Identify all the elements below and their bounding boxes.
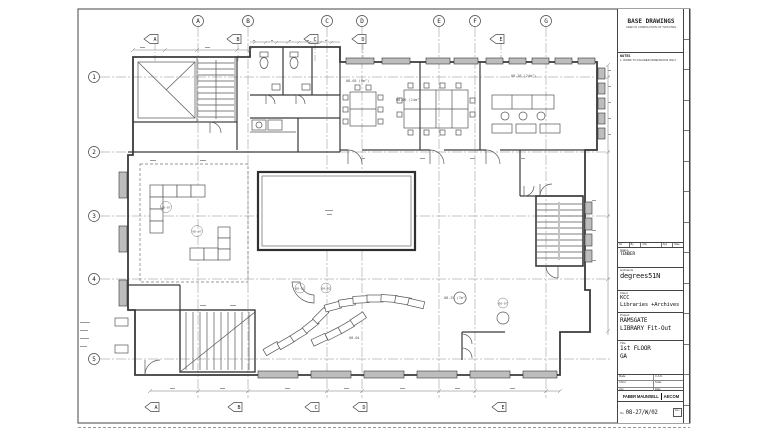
section-label: B (236, 37, 239, 43)
section-label: B (237, 405, 240, 411)
project-line: RAMSGATE (620, 317, 682, 325)
scale-label: Scale (654, 381, 684, 386)
number-label: No. (620, 411, 625, 415)
drawing-sheet: A B C D E F G 1 2 3 4 5 A B C D (0, 0, 776, 437)
architects-box: Architects degrees51N (618, 268, 684, 291)
room-code: 08-04 (349, 336, 360, 340)
grid-label: E (437, 18, 441, 25)
section-label: E (499, 37, 502, 43)
strip-cell (684, 253, 689, 284)
strip-cell (684, 375, 689, 406)
section-label: C (314, 405, 317, 411)
drawing-number: 08-27/W/02 (626, 410, 658, 416)
strip-cell (684, 284, 689, 315)
room-code: 08-07 (161, 206, 170, 210)
title-line: GA (620, 353, 682, 361)
room-code: 08-01 (295, 287, 304, 291)
status-value: TENDER (620, 252, 682, 258)
room-code: 08-26 (24m²) (511, 74, 536, 78)
section-label: E (501, 405, 504, 411)
strip-cell (684, 9, 689, 40)
architects-name: degrees51N (620, 272, 682, 281)
notes-box: NOTES 1. WORK TO FIGURED DIMENSIONS ONLY (618, 53, 684, 242)
strip-cell (684, 314, 689, 345)
grid-label: B (246, 18, 250, 25)
chkd-label: Chk'd (618, 381, 654, 386)
rev-col: By (630, 243, 642, 247)
grid-label: 3 (92, 213, 96, 220)
room-code: 08-05 (9m²) (346, 79, 369, 83)
grid-label: 4 (92, 276, 96, 283)
made-label: Made (618, 375, 654, 380)
grid-label: D (360, 18, 364, 25)
central-void (258, 172, 415, 250)
section-label: D (362, 405, 365, 411)
room-code: 08-02 (321, 287, 330, 291)
client-line: Libraries +Archives (620, 302, 682, 309)
title-line: 1st FLOOR (620, 345, 682, 353)
note-item: 1. WORK TO FIGURED DIMENSIONS ONLY (620, 58, 682, 62)
section-label: A (153, 37, 156, 43)
number-box: No. 08-27/W/02 Rev (618, 402, 684, 423)
grid-label: C (325, 18, 329, 25)
strip-cell (684, 40, 689, 71)
grid-label: F (473, 18, 477, 25)
base-drawings-subtitle: USED IN COMPILATION OF THIS DWG (620, 25, 682, 29)
strip-cell (684, 223, 689, 254)
strip-cell (684, 131, 689, 162)
aecom-logo: AECOM (664, 394, 680, 399)
grid-label: A (196, 18, 200, 25)
section-label: A (154, 405, 157, 411)
grid-label: 2 (92, 149, 96, 156)
strip-cell (684, 345, 689, 376)
logo-box: FABER MAUNSELL AECOM (618, 391, 684, 402)
strip-cell (684, 192, 689, 223)
base-drawings-box: BASE DRAWINGS USED IN COMPILATION OF THI… (618, 9, 684, 53)
room-code: 08-06 (14m²) (396, 98, 421, 102)
section-label: D (361, 37, 364, 43)
client-line: KCC (620, 295, 682, 302)
strip-cell (684, 406, 689, 436)
grid-label: 1 (92, 74, 96, 81)
rev-col: No (618, 243, 630, 247)
faber-maunsell-logo: FABER MAUNSELL (623, 394, 659, 399)
room-code: 08-25 (7m²) (444, 296, 467, 300)
copyright-microtext-line (78, 427, 690, 428)
client-box: Client KCC Libraries +Archives (618, 291, 684, 313)
fields-box: Made C.A.D. Chk'd Scale App Date (618, 375, 684, 391)
project-line: LIBRARY Fit-Out (620, 325, 682, 333)
rev-col: Chk (641, 243, 661, 247)
strip-cell (684, 70, 689, 101)
status-box: Status TENDER (618, 248, 684, 268)
base-drawings-title: BASE DRAWINGS (620, 18, 682, 25)
rev-col: App (662, 243, 674, 247)
project-box: Project RAMSGATE LIBRARY Fit-Out (618, 313, 684, 341)
room-code: 08-07 (498, 302, 507, 306)
grid-label: G (544, 18, 548, 25)
strip-cell (684, 101, 689, 132)
cad-label: C.A.D. (654, 375, 684, 380)
revision-strip (683, 9, 690, 423)
logo-divider (661, 393, 662, 400)
grid-label: 5 (92, 356, 96, 363)
drawing-title-box: Title 1st FLOOR GA (618, 341, 684, 375)
title-block: BASE DRAWINGS USED IN COMPILATION OF THI… (617, 9, 683, 423)
strip-cell (684, 162, 689, 193)
room-code: 08-07 (192, 230, 201, 234)
rev-cell: Rev (673, 408, 682, 417)
